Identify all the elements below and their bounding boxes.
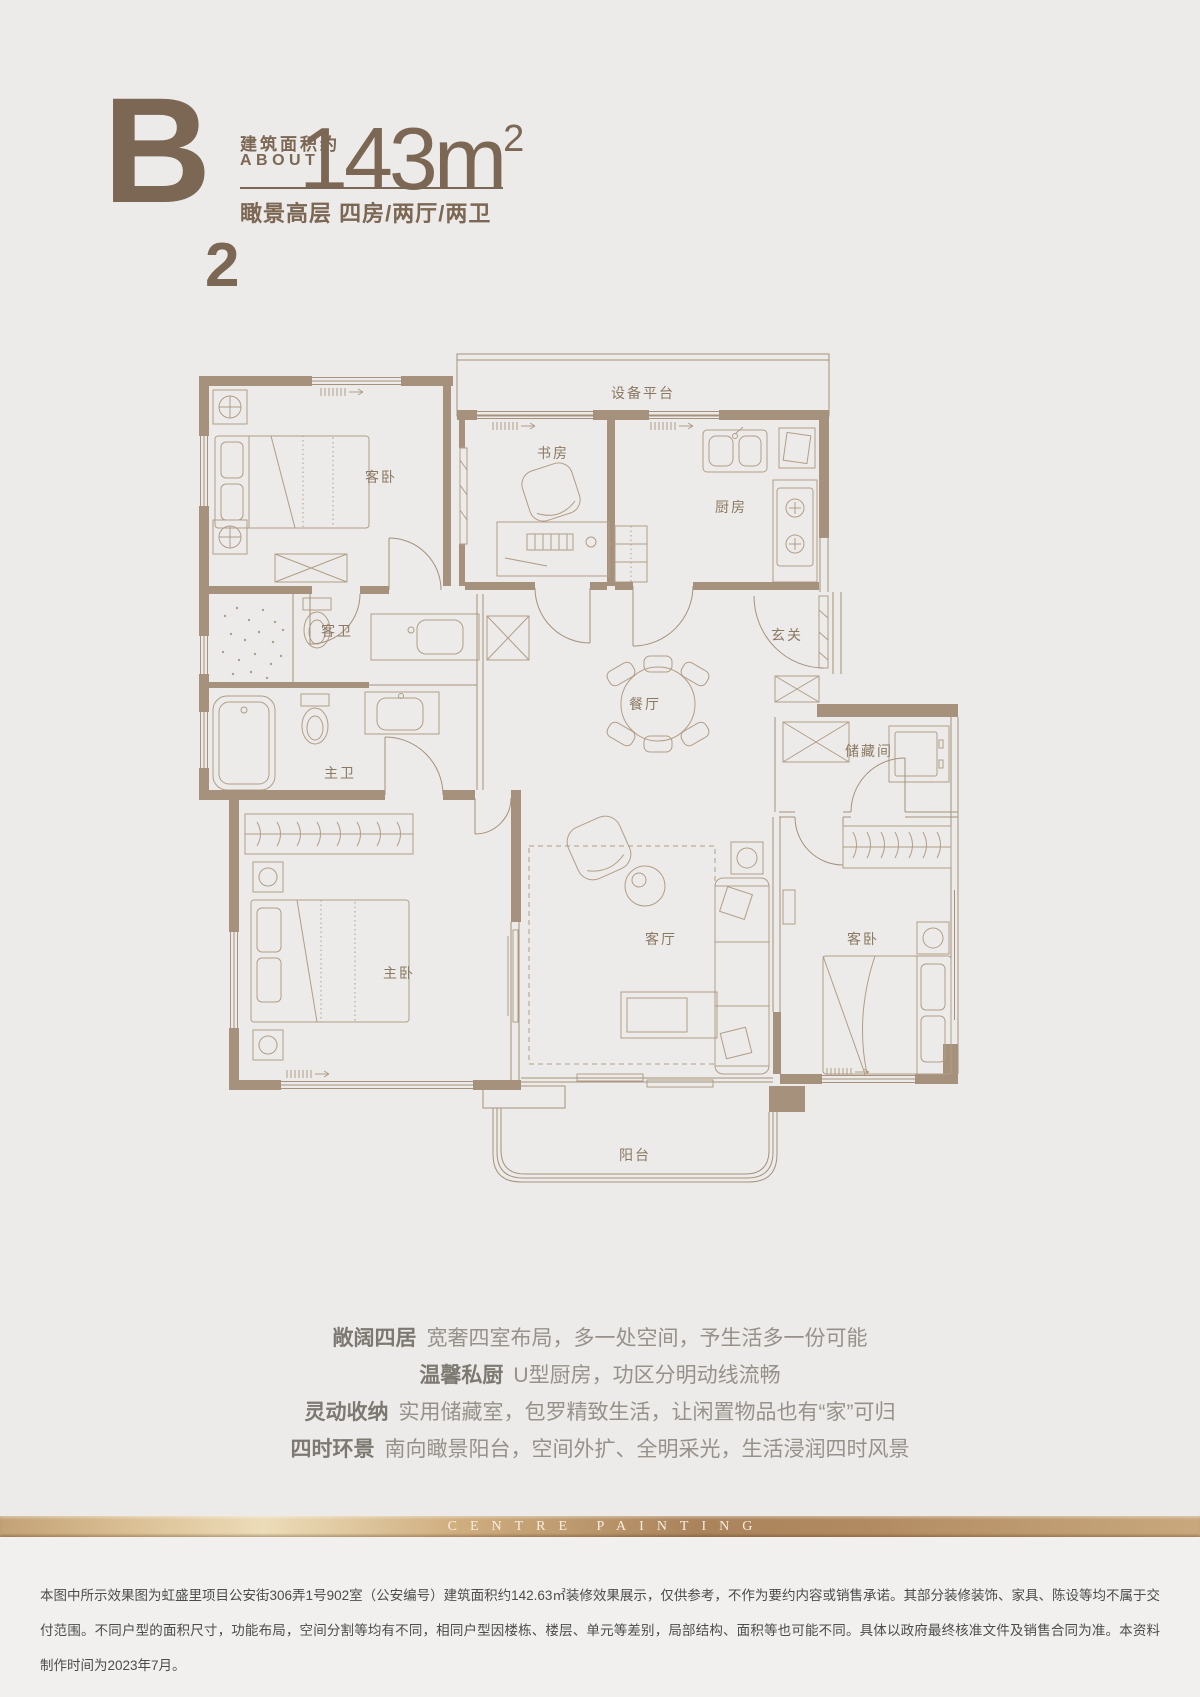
chair-icon	[518, 459, 584, 525]
room-label-kitchen: 厨房	[715, 499, 747, 515]
room-label-balcony: 阳台	[619, 1147, 651, 1163]
feature-row: 灵动收纳实用储藏室，包罗精致生活，让闲置物品也有“家”可归	[0, 1402, 1200, 1424]
feature-desc: 实用储藏室，包罗精致生活，让闲置物品也有“家”可归	[399, 1401, 896, 1424]
feature-title: 敞阔四居	[333, 1327, 417, 1350]
feature-row: 温馨私厨U型厨房，功区分明动线流畅	[0, 1365, 1200, 1387]
tv-icon	[508, 930, 518, 1022]
room-master-bath: 主卫	[209, 682, 477, 795]
sink-icon	[365, 692, 439, 734]
room-study: 书房	[459, 420, 615, 643]
brand-bar: CENTRE PAINTING	[0, 1516, 1200, 1537]
nightstand-icon	[253, 1030, 283, 1060]
brand-text: CENTRE PAINTING	[0, 1516, 1200, 1537]
feature-title: 温馨私厨	[419, 1364, 503, 1387]
room-label-bedroom-right: 客卧	[847, 931, 879, 947]
storage-cabinet-icon	[889, 726, 949, 782]
counter-icon	[615, 526, 647, 582]
feature-list: 敞阔四居宽奢四室布局，多一处空间，予生活多一份可能 温馨私厨U型厨房，功区分明动…	[0, 1328, 1200, 1476]
wardrobe-icon	[245, 814, 413, 854]
room-label-dining: 餐厅	[629, 696, 661, 712]
area-superscript: 2	[503, 118, 524, 160]
room-kitchen: 厨房	[615, 422, 819, 646]
wardrobe-icon	[843, 826, 951, 868]
feature-title: 四时环景	[291, 1438, 375, 1461]
hall-cabinet-icon	[783, 722, 849, 762]
feature-row: 敞阔四居宽奢四室布局，多一处空间，予生活多一份可能	[0, 1328, 1200, 1350]
linen-cabinet-icon	[487, 616, 529, 660]
feature-title: 灵动收纳	[305, 1401, 389, 1424]
room-label-study: 书房	[537, 445, 569, 461]
cabinet-icon	[779, 428, 815, 468]
bed-icon	[215, 436, 369, 528]
room-label-living: 客厅	[645, 931, 677, 947]
bathtub-icon	[213, 696, 275, 790]
header-divider	[240, 187, 503, 189]
vanity-sink-icon	[371, 614, 479, 660]
area-number: 143m	[299, 109, 503, 208]
room-label-master-bedroom: 主卧	[383, 965, 415, 981]
exterior-walls	[199, 376, 958, 1090]
ac-unit-icon	[213, 520, 247, 554]
bench-icon	[275, 554, 347, 582]
room-label-foyer: 玄关	[771, 627, 803, 643]
floorplan: 设备平台	[175, 330, 965, 1210]
room-dining: 餐厅	[605, 656, 711, 752]
room-living: 客厅	[521, 811, 773, 1087]
coffee-table-icon	[621, 992, 717, 1038]
armchair-icon	[562, 811, 636, 885]
floorplan-poster: { "header": { "type_letter": "B", "type_…	[0, 0, 1200, 1697]
shower-area-icon	[222, 607, 284, 679]
room-storage: 储藏间	[775, 717, 958, 817]
nightstand-icon	[917, 922, 949, 954]
feature-row: 四时环景南向瞰景阳台，空间外扩、全明采光，生活浸润四时风景	[0, 1439, 1200, 1461]
toilet-icon	[301, 694, 329, 744]
room-label-equipment-platform: 设备平台	[611, 385, 675, 401]
ac-unit-icon	[731, 842, 763, 874]
shoe-cabinet-icon	[775, 676, 819, 702]
plan-subtitle: 瞰景高层 四房/两厅/两卫	[240, 196, 491, 228]
room-label-master-bath: 主卫	[324, 765, 356, 781]
room-master-bedroom: 主卧	[209, 790, 521, 1080]
room-foyer: 玄关	[754, 592, 841, 702]
plan-header: B 2 建筑面积约 ABOUT 143m2 瞰景高层 四房/两厅/两卫	[103, 75, 583, 235]
bed-icon	[823, 956, 951, 1074]
feature-desc: 宽奢四室布局，多一处空间，予生活多一份可能	[427, 1327, 868, 1350]
stove-icon	[773, 480, 817, 582]
feature-desc: 南向瞰景阳台，空间外扩、全明采光，生活浸润四时风景	[385, 1438, 910, 1461]
room-bedroom-top-left: 客卧	[209, 386, 451, 594]
sofa-icon	[715, 878, 769, 1074]
desk-icon	[497, 522, 609, 576]
room-label-bedroom-top-left: 客卧	[365, 469, 397, 485]
room-label-guest-bath: 客卫	[321, 623, 353, 639]
room-label-storage: 储藏间	[845, 743, 893, 759]
bed-icon	[251, 900, 409, 1022]
room-balcony: 阳台	[483, 1086, 805, 1182]
nightstand-icon	[253, 862, 283, 892]
ac-unit-icon	[213, 390, 247, 424]
equipment-platform: 设备平台	[457, 354, 829, 416]
unit-type-subscript: 2	[205, 235, 239, 297]
side-table-icon	[625, 866, 665, 906]
kitchen-sink-icon	[703, 427, 767, 472]
room-bedroom-right: 客卧	[773, 817, 951, 1076]
disclaimer-text: 本图中所示效果图为虹盛里项目公安街306弄1号902室（公安编号）建筑面积约14…	[40, 1578, 1160, 1683]
feature-desc: U型厨房，功区分明动线流畅	[513, 1364, 780, 1387]
floorplan-svg: 设备平台	[175, 330, 965, 1210]
unit-type-letter: B	[103, 75, 211, 225]
